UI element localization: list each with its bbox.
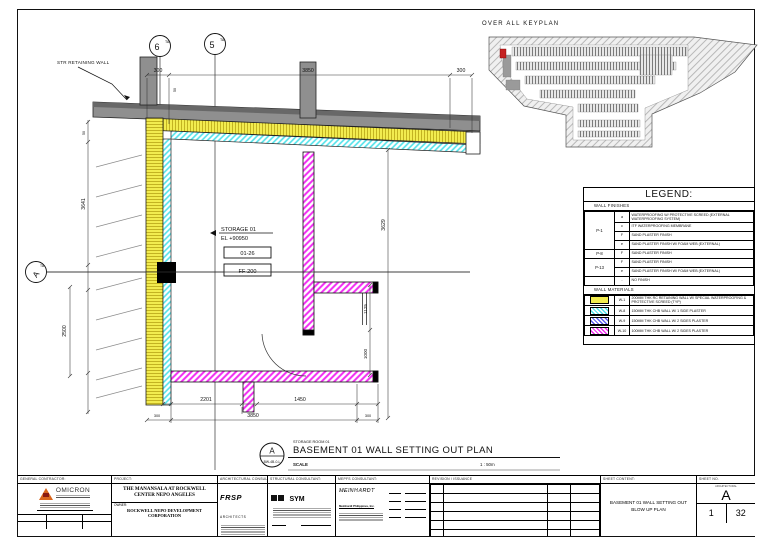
column-filled: [157, 262, 176, 283]
swatch-cyan: [590, 307, 609, 315]
plan-title: A BW-4B-0-L STORAGE ROOM 01 BASEMENT 01 …: [260, 440, 560, 470]
table-row: W-10 100MM THK CHB WALL W/ 2 SIDES PLAST…: [585, 326, 754, 336]
basement-plan: 6 TA 5 TA A TA: [26, 34, 561, 471]
revision-label: REVISION / ISSUANCE: [430, 476, 600, 484]
sym-logo-icon: [271, 495, 277, 501]
svg-text:3850: 3850: [247, 413, 259, 419]
svg-text:2500: 2500: [62, 325, 68, 337]
retaining-wall-leader: STR RETAINING WALL: [57, 60, 130, 100]
structural-label: STRUCTURAL CONSULTANT:: [268, 476, 335, 484]
svg-text:300: 300: [154, 68, 163, 74]
sheet-num: 1: [697, 504, 727, 523]
svg-text:1125: 1125: [363, 304, 368, 314]
svg-text:300: 300: [457, 68, 466, 74]
owner-name: ROCKWELL NEPO DEVELOPMENT CORPORATION: [112, 508, 217, 519]
keyplan-title: OVER ALL KEYPLAN: [482, 21, 559, 27]
swatch-magenta: [590, 327, 609, 335]
svg-text:50: 50: [173, 88, 177, 92]
titleblock-structural: STRUCTURAL CONSULTANT: SYM: [268, 476, 336, 536]
svg-text:TA: TA: [165, 40, 170, 44]
sheet-content-text: BASEMENT 01 WALL SETTING OUT BLOW UP PLA…: [601, 484, 696, 530]
sheet-no-label: SHEET NO.: [697, 476, 755, 484]
svg-text:2201: 2201: [200, 397, 212, 403]
svg-text:300: 300: [154, 414, 160, 418]
finish-group: [585, 276, 615, 285]
plan-title-text: BASEMENT 01 WALL SETTING OUT PLAN: [293, 445, 493, 456]
revision-table: [430, 484, 600, 536]
titleblock-mepfs: MEPFS CONSULTANT: MEINHARDT Meinhardt Ph…: [336, 476, 430, 536]
general-contractor-label: GENERAL CONTRACTOR:: [18, 476, 111, 484]
sheet-numbers: 1 32: [697, 503, 755, 523]
table-row: P-8 F SAND PLASTER FINISH: [585, 249, 754, 258]
svg-text:STR RETAINING WALL: STR RETAINING WALL: [57, 60, 110, 65]
mepfs-signature-lines: [389, 488, 426, 522]
frsp-logo: FRSP: [220, 493, 242, 502]
legend: LEGEND: WALL FINISHES P-1 a WATERPROOFIN…: [583, 187, 755, 345]
finish-group: P-1: [585, 212, 615, 250]
grid-bubble-A: A TA: [26, 262, 47, 283]
wall-stub-left: [140, 57, 157, 105]
frsp-sub: ARCHITECTS: [220, 515, 246, 519]
table-row: P-13 F SAND PLASTER FINISH: [585, 258, 754, 267]
svg-text:5: 5: [209, 40, 214, 50]
titleblock-architectural: ARCHITECTURAL CONSULTANT: FRSP ARCHITECT…: [218, 476, 268, 536]
svg-text:STORAGE 01: STORAGE 01: [221, 227, 256, 233]
title-bubble-ref: BW-4B-0-L: [264, 460, 281, 464]
svg-text:01-26: 01-26: [240, 251, 254, 257]
sym-logo: SYM: [289, 496, 304, 503]
svg-text:EL +90950: EL +90950: [221, 236, 248, 242]
keyplan-highlight-marker: [500, 49, 506, 58]
titleblock-project: PROJECT: THE MANANSALA AT ROCKWELL CENTE…: [112, 476, 218, 536]
legend-materials-header: WALL MATERIALS: [584, 286, 754, 295]
svg-text:3850: 3850: [302, 68, 314, 74]
tag-boxes: 01-26 FF-200: [47, 247, 471, 276]
legend-finishes-header: WALL FINISHES: [584, 202, 754, 211]
title-overline: STORAGE ROOM 01: [293, 440, 330, 444]
architectural-label: ARCHITECTURAL CONSULTANT:: [218, 476, 267, 484]
finishes-table: P-1 a WATERPROOFING W/ PROTECTIVE SCREED…: [584, 211, 754, 286]
grid-bubble-6TA: 6 TA: [150, 36, 171, 57]
materials-table: W-1 200MM THK RC RETAINING WALL W/ SPECI…: [584, 295, 754, 337]
sheet-content-label: SHEET CONTENT:: [601, 476, 696, 484]
titleblock-sheet-content: SHEET CONTENT: BASEMENT 01 WALL SETTING …: [601, 476, 697, 536]
keyplan: OVER ALL KEYPLAN: [482, 21, 757, 147]
scale-label: SCALE: [293, 462, 308, 467]
chb-walls: [171, 152, 378, 412]
scale-value: 1 : 50m: [480, 462, 495, 467]
titleblock-revision: REVISION / ISSUANCE: [430, 476, 601, 536]
table-row: - NO FINISH: [585, 276, 754, 285]
table-row: P-1 a WATERPROOFING W/ PROTECTIVE SCREED…: [585, 212, 754, 223]
drawing-sheet: OVER ALL KEYPLAN: [0, 0, 768, 543]
project-name: THE MANANSALA AT ROCKWELL CENTER NEPO AN…: [112, 484, 217, 502]
meinhardt-logo: MEINHARDT: [339, 488, 385, 494]
omicron-name: OMICRON: [56, 488, 90, 500]
grid-bubble-5TA: 5 TA: [205, 34, 226, 55]
title-block: GENERAL CONTRACTOR: OMICRON PROJECT: THE…: [18, 475, 755, 536]
svg-text:3629: 3629: [381, 219, 387, 231]
swatch-blue: [590, 317, 609, 325]
room-label: STORAGE 01 EL +90950: [210, 227, 273, 242]
legend-empty-row: [584, 336, 754, 356]
svg-text:1000: 1000: [363, 348, 368, 359]
omicron-logo-icon: [39, 488, 53, 500]
finish-group: P-13: [585, 258, 615, 276]
swatch-yellow: [590, 296, 609, 304]
svg-text:TA: TA: [220, 38, 225, 42]
soil-hatch: [96, 155, 142, 398]
titleblock-general-contractor: GENERAL CONTRACTOR: OMICRON: [18, 476, 112, 536]
svg-text:3641: 3641: [81, 198, 87, 210]
project-label: PROJECT:: [112, 476, 217, 484]
svg-text:1450: 1450: [294, 397, 306, 403]
svg-text:50: 50: [82, 131, 86, 135]
table-row: W-9 150MM THK CHB WALL W/ 2 SIDES PLASTE…: [585, 316, 754, 326]
finish-group: P-8: [585, 249, 615, 258]
sheet-num: 32: [727, 504, 756, 523]
table-row: W-1 200MM THK RC RETAINING WALL W/ SPECI…: [585, 295, 754, 306]
table-row: W-8 150MM THK CHB WALL W/ 1 SIDE PLASTER: [585, 306, 754, 316]
sheet-letter: A: [697, 488, 755, 503]
legend-title: LEGEND:: [584, 188, 754, 202]
mepfs-label: MEPFS CONSULTANT:: [336, 476, 429, 484]
meinhardt-sub: Meinhardt Philippines, Inc.: [339, 504, 374, 509]
svg-text:300: 300: [365, 414, 371, 418]
svg-text:6: 6: [154, 42, 159, 52]
door-swing-arc: [262, 334, 306, 376]
title-bubble-letter: A: [269, 447, 275, 456]
titleblock-sheet-no: SHEET NO. ARCHITECTURAL A 1 32: [697, 476, 755, 536]
